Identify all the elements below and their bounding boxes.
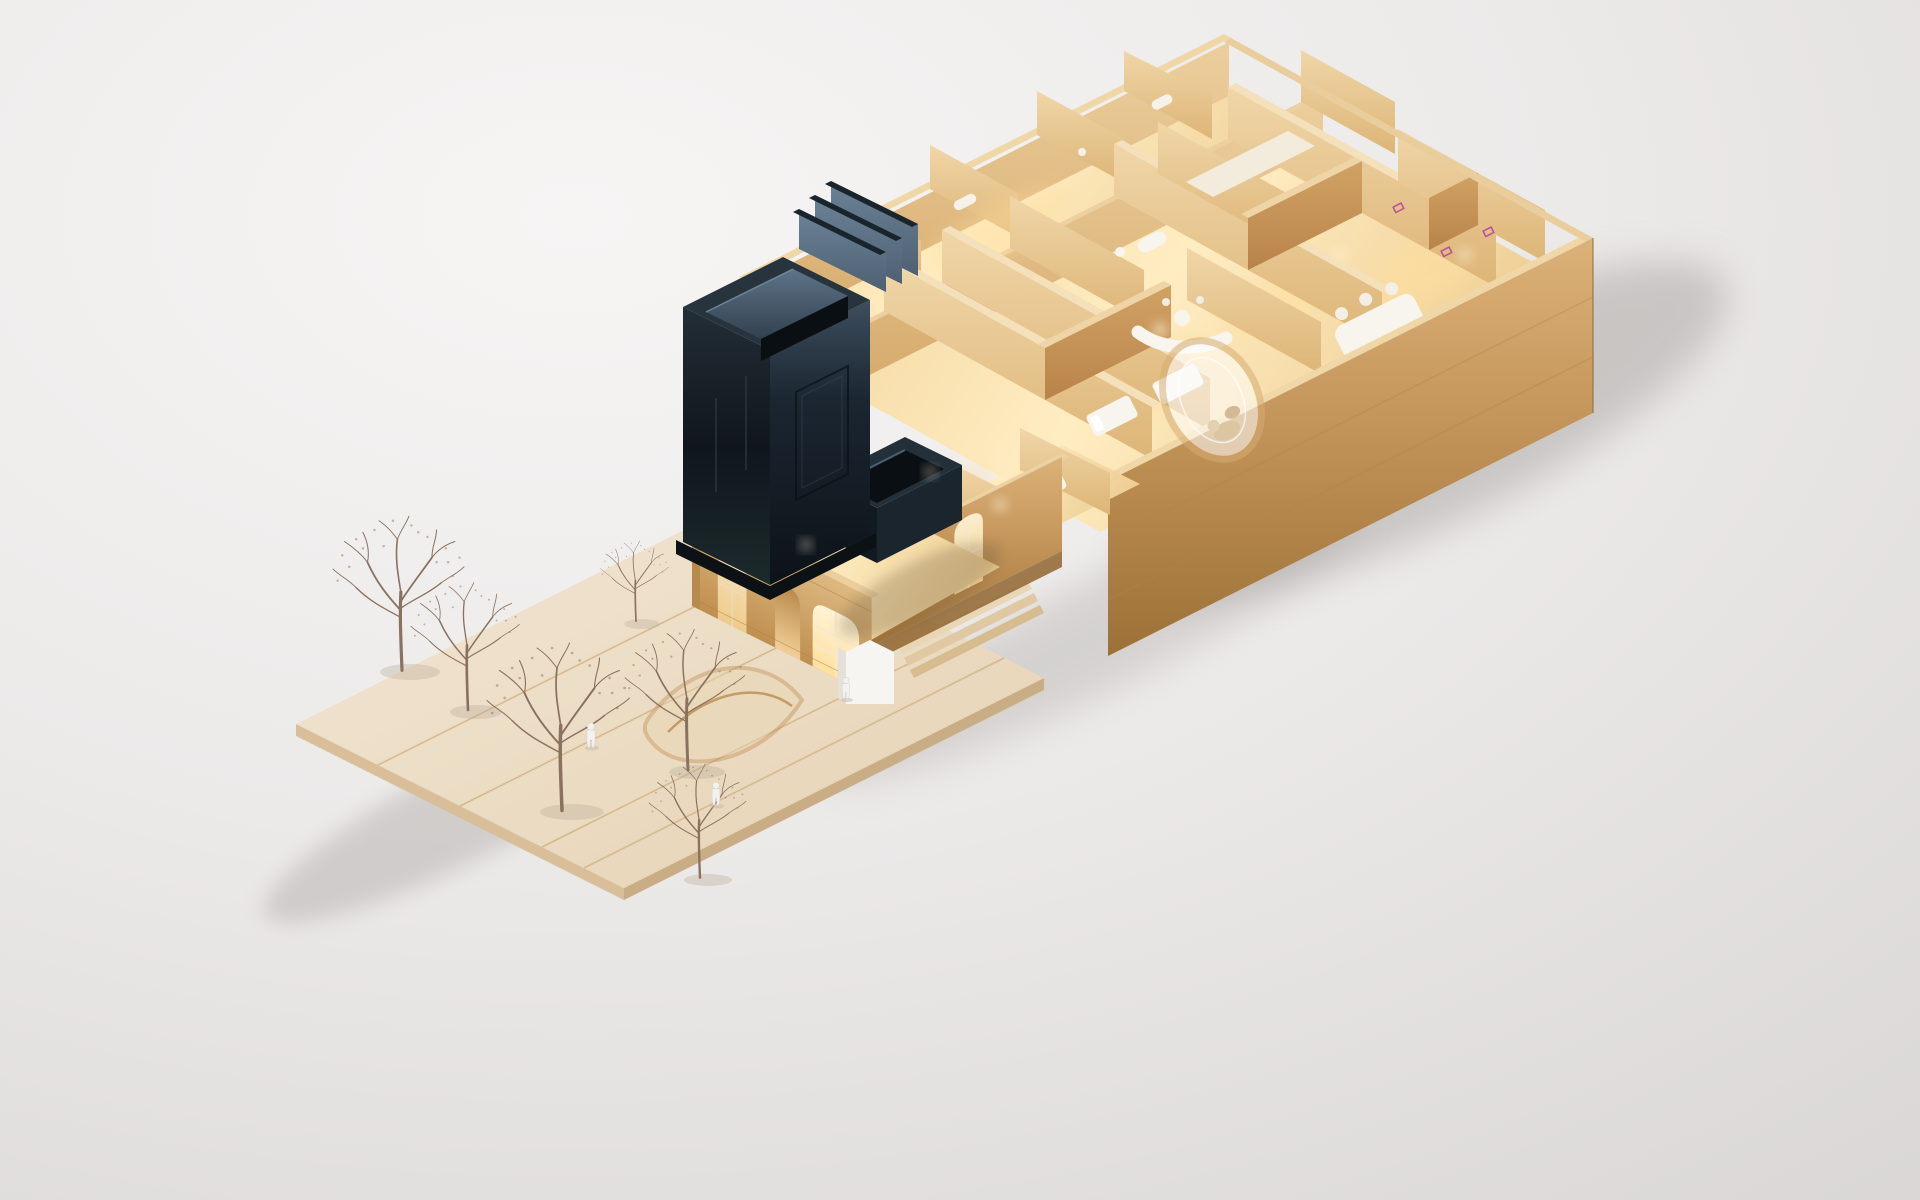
toilet xyxy=(1115,247,1125,257)
round-table xyxy=(1174,310,1190,326)
render-canvas xyxy=(0,0,1920,1200)
tower-face-sw xyxy=(683,307,770,585)
architectural-model-scene xyxy=(0,0,1920,1200)
